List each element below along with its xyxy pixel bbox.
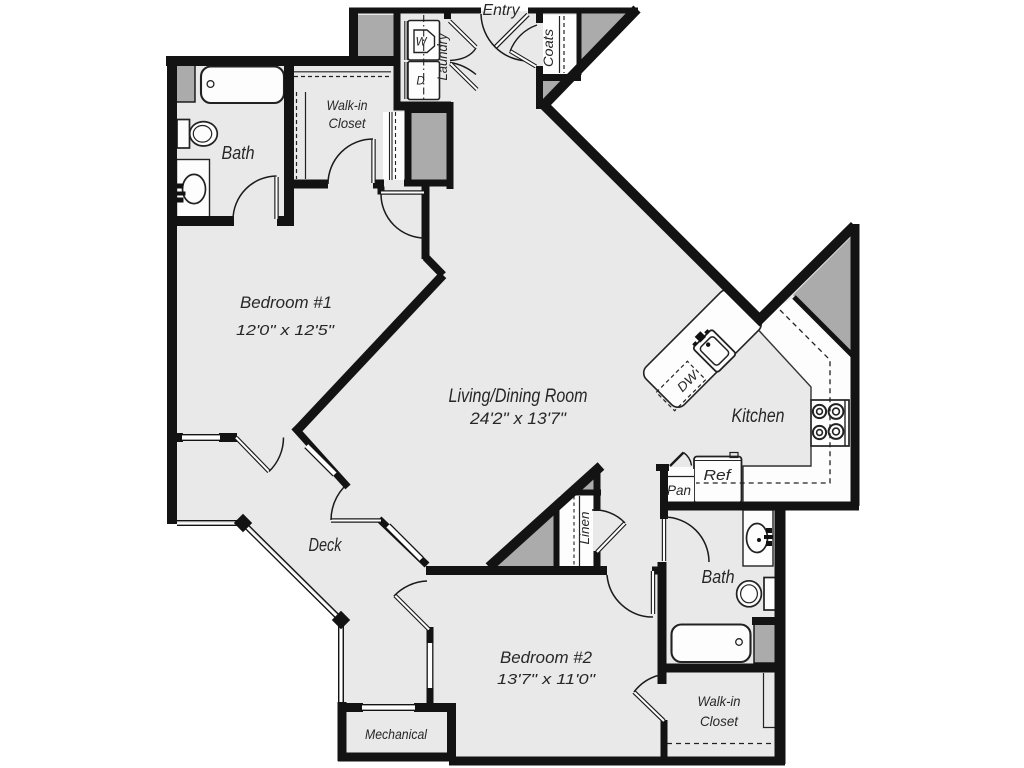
svg-text:13'7" x 11'0": 13'7" x 11'0" <box>497 671 596 688</box>
svg-text:Coats: Coats <box>541 29 556 67</box>
svg-text:Bath: Bath <box>702 567 735 587</box>
svg-text:Bedroom #1: Bedroom #1 <box>240 294 332 312</box>
svg-text:Bedroom #2: Bedroom #2 <box>500 649 592 667</box>
svg-text:Laundry: Laundry <box>435 32 450 80</box>
svg-text:Walk-in: Walk-in <box>698 693 741 709</box>
svg-text:W: W <box>416 37 428 49</box>
svg-text:Pan: Pan <box>667 482 691 498</box>
svg-text:Deck: Deck <box>309 535 343 555</box>
svg-text:Mechanical: Mechanical <box>365 726 428 742</box>
svg-text:Living/Dining Room: Living/Dining Room <box>449 386 588 407</box>
svg-text:12'0" x 12'5": 12'0" x 12'5" <box>236 322 335 339</box>
svg-text:Entry: Entry <box>483 2 521 19</box>
svg-text:Kitchen: Kitchen <box>732 406 785 427</box>
svg-text:D: D <box>416 76 424 88</box>
svg-text:Walk-in: Walk-in <box>327 97 368 113</box>
svg-text:Closet: Closet <box>329 115 367 131</box>
svg-text:Bath: Bath <box>222 143 255 163</box>
svg-text:24'2" x 13'7": 24'2" x 13'7" <box>469 410 567 428</box>
svg-text:Closet: Closet <box>700 713 739 729</box>
svg-text:Linen: Linen <box>577 512 592 545</box>
svg-text:Ref: Ref <box>704 467 733 484</box>
